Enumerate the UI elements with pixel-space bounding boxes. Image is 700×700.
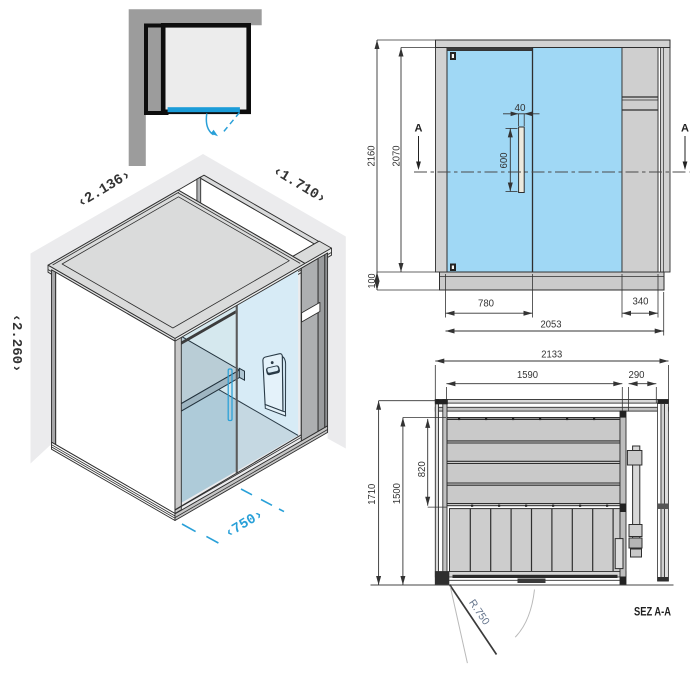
svg-text:1500: 1500 <box>392 483 403 504</box>
svg-text:600: 600 <box>499 152 510 168</box>
svg-text:2160: 2160 <box>367 145 378 166</box>
svg-text:820: 820 <box>417 461 428 477</box>
svg-text:2053: 2053 <box>541 320 562 331</box>
svg-text:780: 780 <box>478 299 494 310</box>
svg-text:40: 40 <box>515 103 526 114</box>
svg-text:290: 290 <box>629 370 645 381</box>
svg-text:1590: 1590 <box>517 370 538 381</box>
svg-text:2070: 2070 <box>392 145 403 166</box>
svg-text:SEZ A-A: SEZ A-A <box>634 607 671 619</box>
svg-text:‹2.260›: ‹2.260› <box>8 314 24 373</box>
svg-text:A: A <box>681 123 689 135</box>
svg-text:100: 100 <box>367 273 378 288</box>
svg-text:340: 340 <box>633 297 649 308</box>
svg-text:1710: 1710 <box>367 483 378 504</box>
svg-text:A: A <box>415 123 423 135</box>
svg-text:2133: 2133 <box>541 350 562 361</box>
